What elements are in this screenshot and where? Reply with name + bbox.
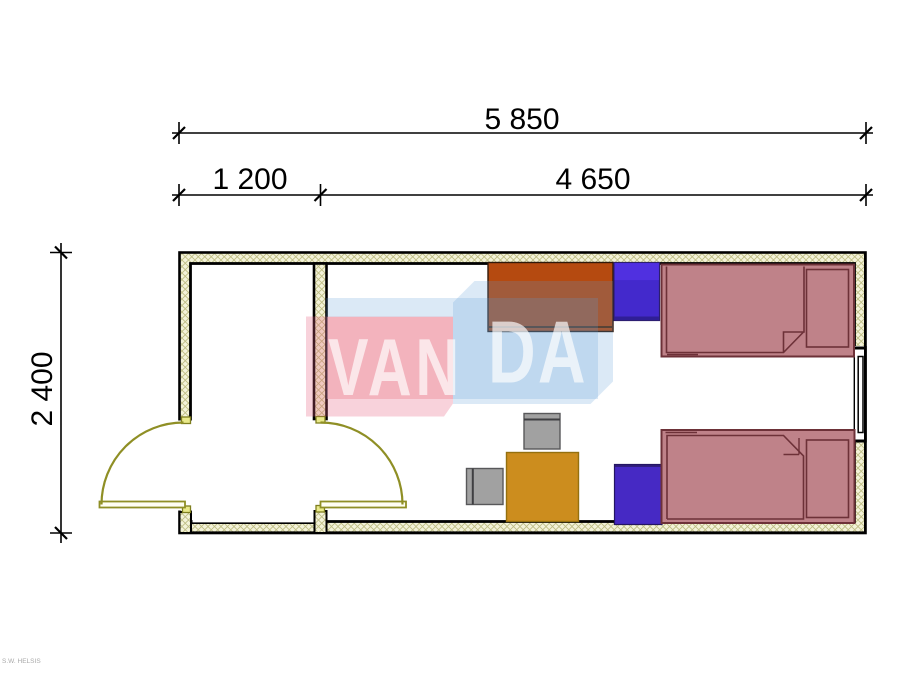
svg-text:4 650: 4 650 [555, 163, 630, 196]
svg-text:VAN: VAN [328, 323, 463, 414]
svg-text:1 200: 1 200 [212, 163, 287, 196]
svg-text:2 400: 2 400 [26, 351, 59, 426]
svg-text:S.W. HELSIS: S.W. HELSIS [2, 658, 41, 665]
svg-text:DA: DA [488, 304, 588, 401]
svg-text:5 850: 5 850 [484, 103, 559, 136]
